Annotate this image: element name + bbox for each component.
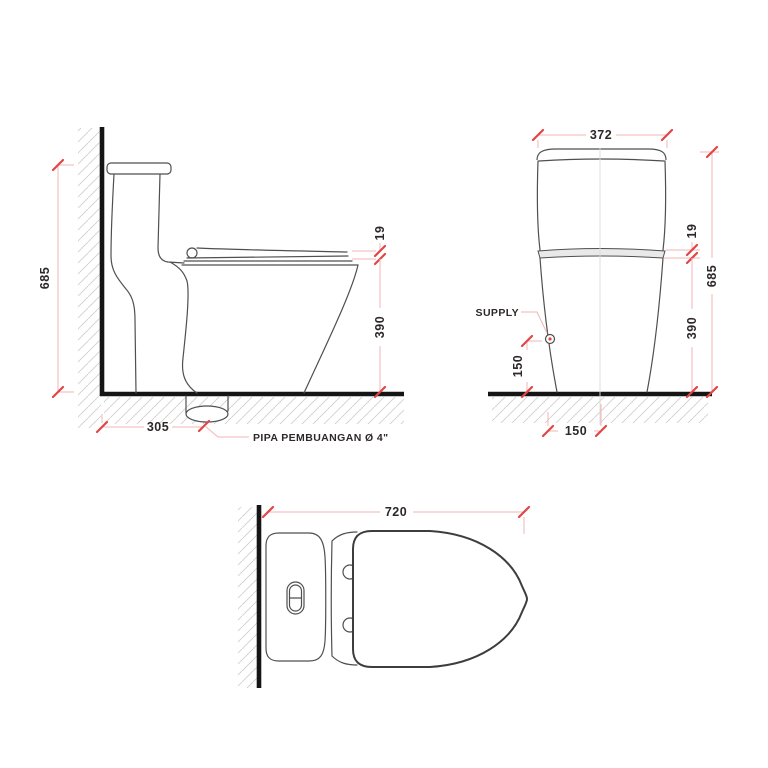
bowl-front-edge [304, 265, 358, 393]
dim-top-length-value: 720 [385, 505, 407, 519]
pipe-callout: PIPA PEMBUANGAN Ø 4" [205, 426, 389, 444]
seat-lid-top-outline [353, 531, 527, 667]
dim-side-height: 685 [38, 160, 74, 397]
tank-left-edge [537, 161, 540, 250]
front-view: 372 SUPPLY 150 150 19 390 [476, 128, 719, 438]
tank-right-edge [663, 161, 666, 250]
body-right-edge [647, 258, 663, 392]
dim-front-rim-height: 390 [685, 258, 699, 397]
dim-supply-height-value: 150 [511, 355, 525, 377]
supply-callout: SUPPLY [476, 307, 547, 333]
dim-side-seat-thickness-value: 19 [373, 226, 387, 241]
side-view: 685 19 390 305 PIPA PEMBUANGAN Ø 4" [38, 127, 404, 444]
seat-hinge-side [187, 248, 197, 258]
tank-front-edge [158, 174, 184, 263]
tank-top-outline [266, 533, 326, 661]
dim-side-seat-thickness: 19 [352, 226, 387, 264]
dim-side-depth-value: 305 [147, 420, 169, 434]
dim-side-rim-height: 390 [373, 259, 387, 397]
body-left-edge [540, 258, 557, 392]
dim-top-length: 720 [263, 505, 529, 534]
dim-side-height-value: 685 [38, 267, 52, 289]
pipe-label: PIPA PEMBUANGAN Ø 4" [253, 432, 389, 444]
dim-supply-height: 150 [511, 336, 542, 397]
tank-lid-side [107, 163, 171, 174]
wall-hatching [78, 128, 101, 428]
dim-front-seat-thickness-value: 19 [685, 224, 699, 239]
dim-front-width: 372 [533, 128, 672, 148]
drawing-sheet: 685 19 390 305 PIPA PEMBUANGAN Ø 4" [0, 0, 768, 768]
dim-supply-offset-value: 150 [565, 424, 587, 438]
technical-drawing-svg: 685 19 390 305 PIPA PEMBUANGAN Ø 4" [0, 0, 768, 768]
toilet-side-profile [107, 163, 358, 422]
tank-lid-front [537, 149, 666, 160]
drain-pipe-outlet [186, 406, 228, 422]
seat-lid-top-line [197, 248, 347, 252]
dim-side-rim-height-value: 390 [373, 316, 387, 338]
top-view: 720 [238, 505, 529, 688]
toilet-front-profile [537, 148, 666, 425]
wall-hatching-top [238, 507, 258, 688]
seat-band-front [538, 249, 665, 259]
dim-front-seat-thickness: 19 [664, 224, 700, 263]
supply-inlet-dot [548, 337, 551, 340]
dim-front-height-value: 685 [705, 265, 719, 287]
supply-label: SUPPLY [476, 307, 519, 319]
seat-lid-bottom-line [187, 256, 348, 258]
dim-front-height: 685 [700, 147, 719, 397]
dim-front-rim-height-value: 390 [685, 317, 699, 339]
pedestal-front-edge [170, 262, 197, 393]
tank-back-edge [111, 174, 136, 393]
toilet-top-profile [266, 531, 527, 667]
dim-front-width-value: 372 [590, 128, 612, 142]
